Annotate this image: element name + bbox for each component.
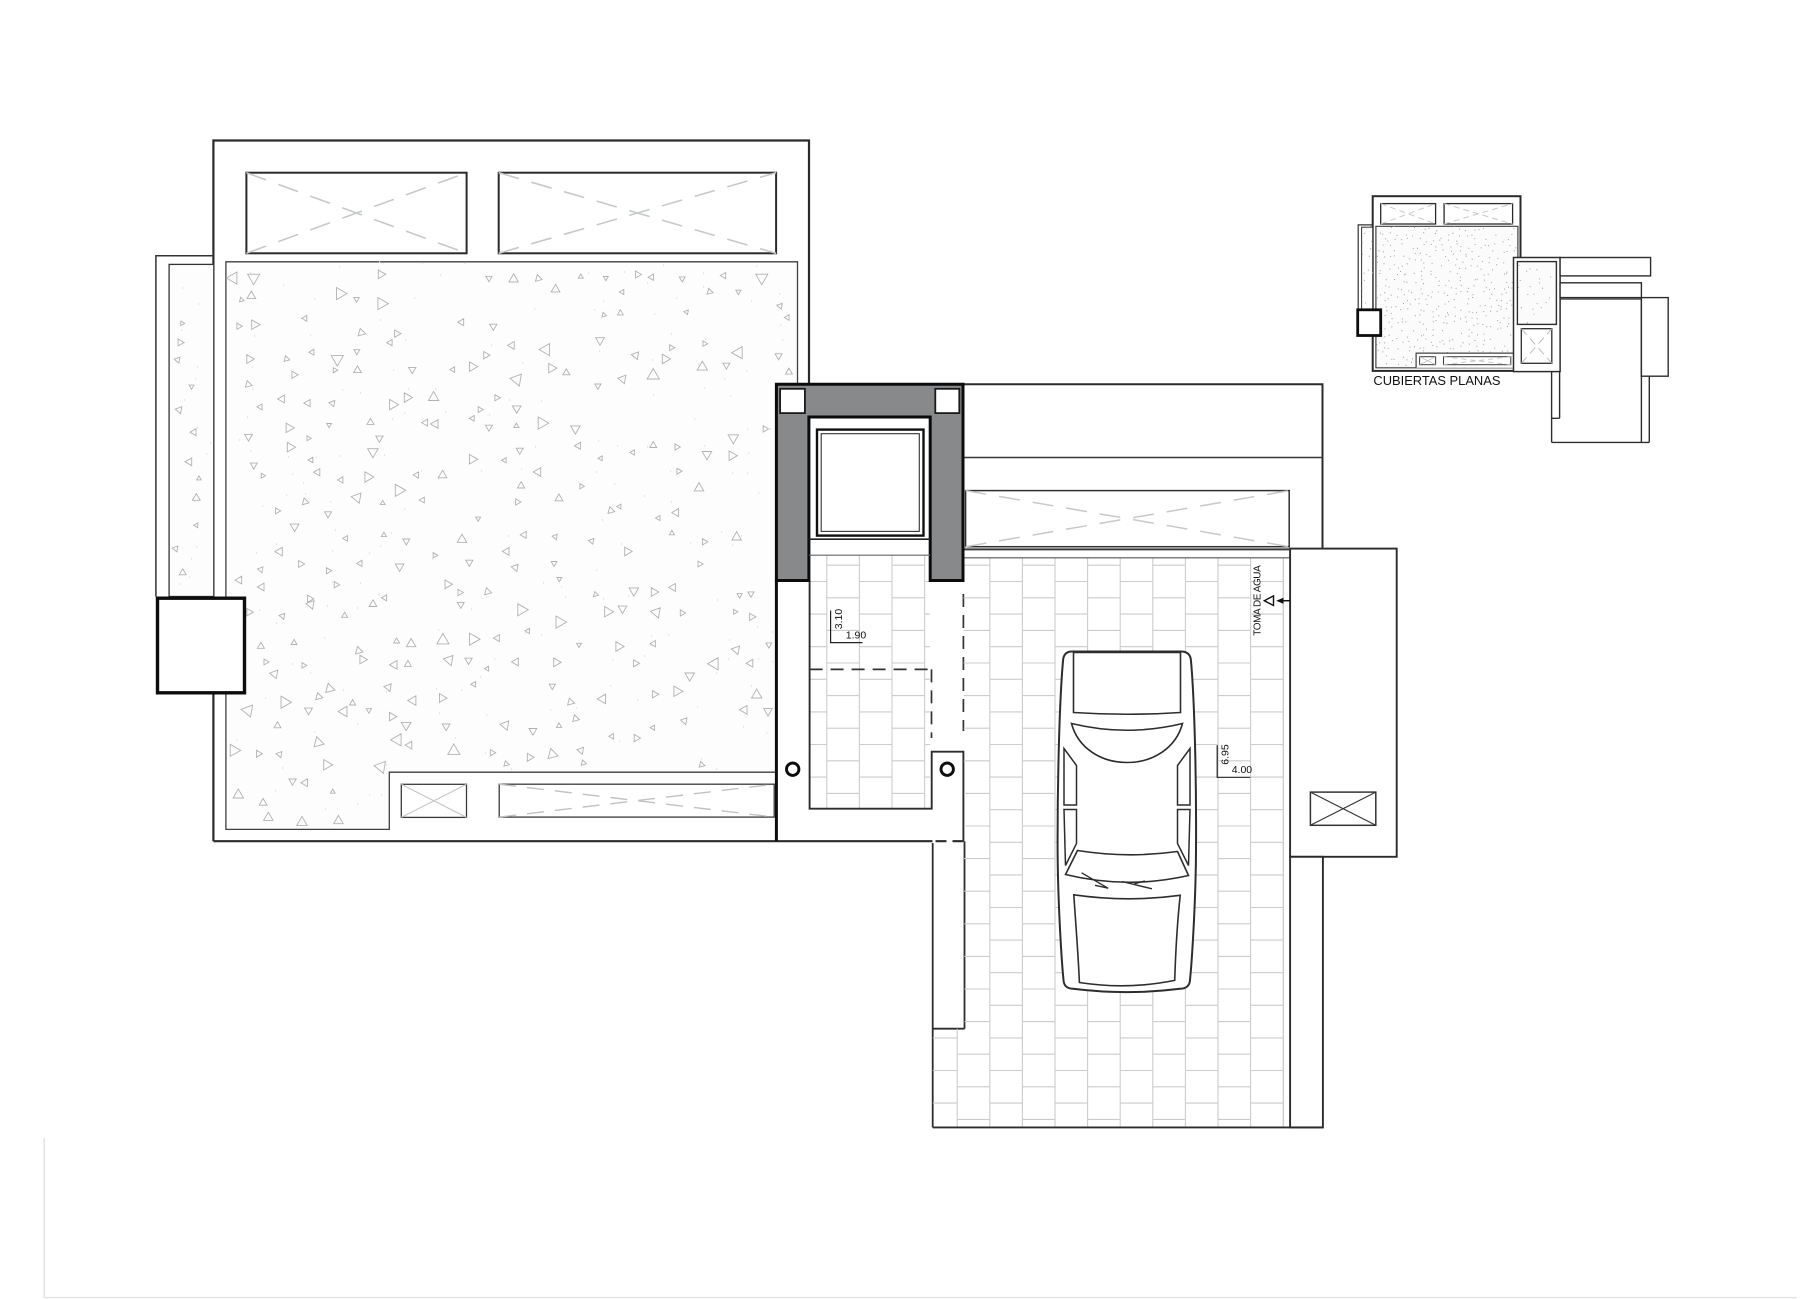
svg-text:CUBIERTAS PLANAS: CUBIERTAS PLANAS [1373, 373, 1500, 388]
svg-text:TOMA DE AGUA: TOMA DE AGUA [1253, 565, 1264, 636]
svg-text:6.95: 6.95 [1220, 744, 1232, 765]
svg-text:1.90: 1.90 [846, 630, 867, 642]
svg-text:3.10: 3.10 [833, 609, 845, 630]
svg-text:4.00: 4.00 [1232, 764, 1253, 776]
